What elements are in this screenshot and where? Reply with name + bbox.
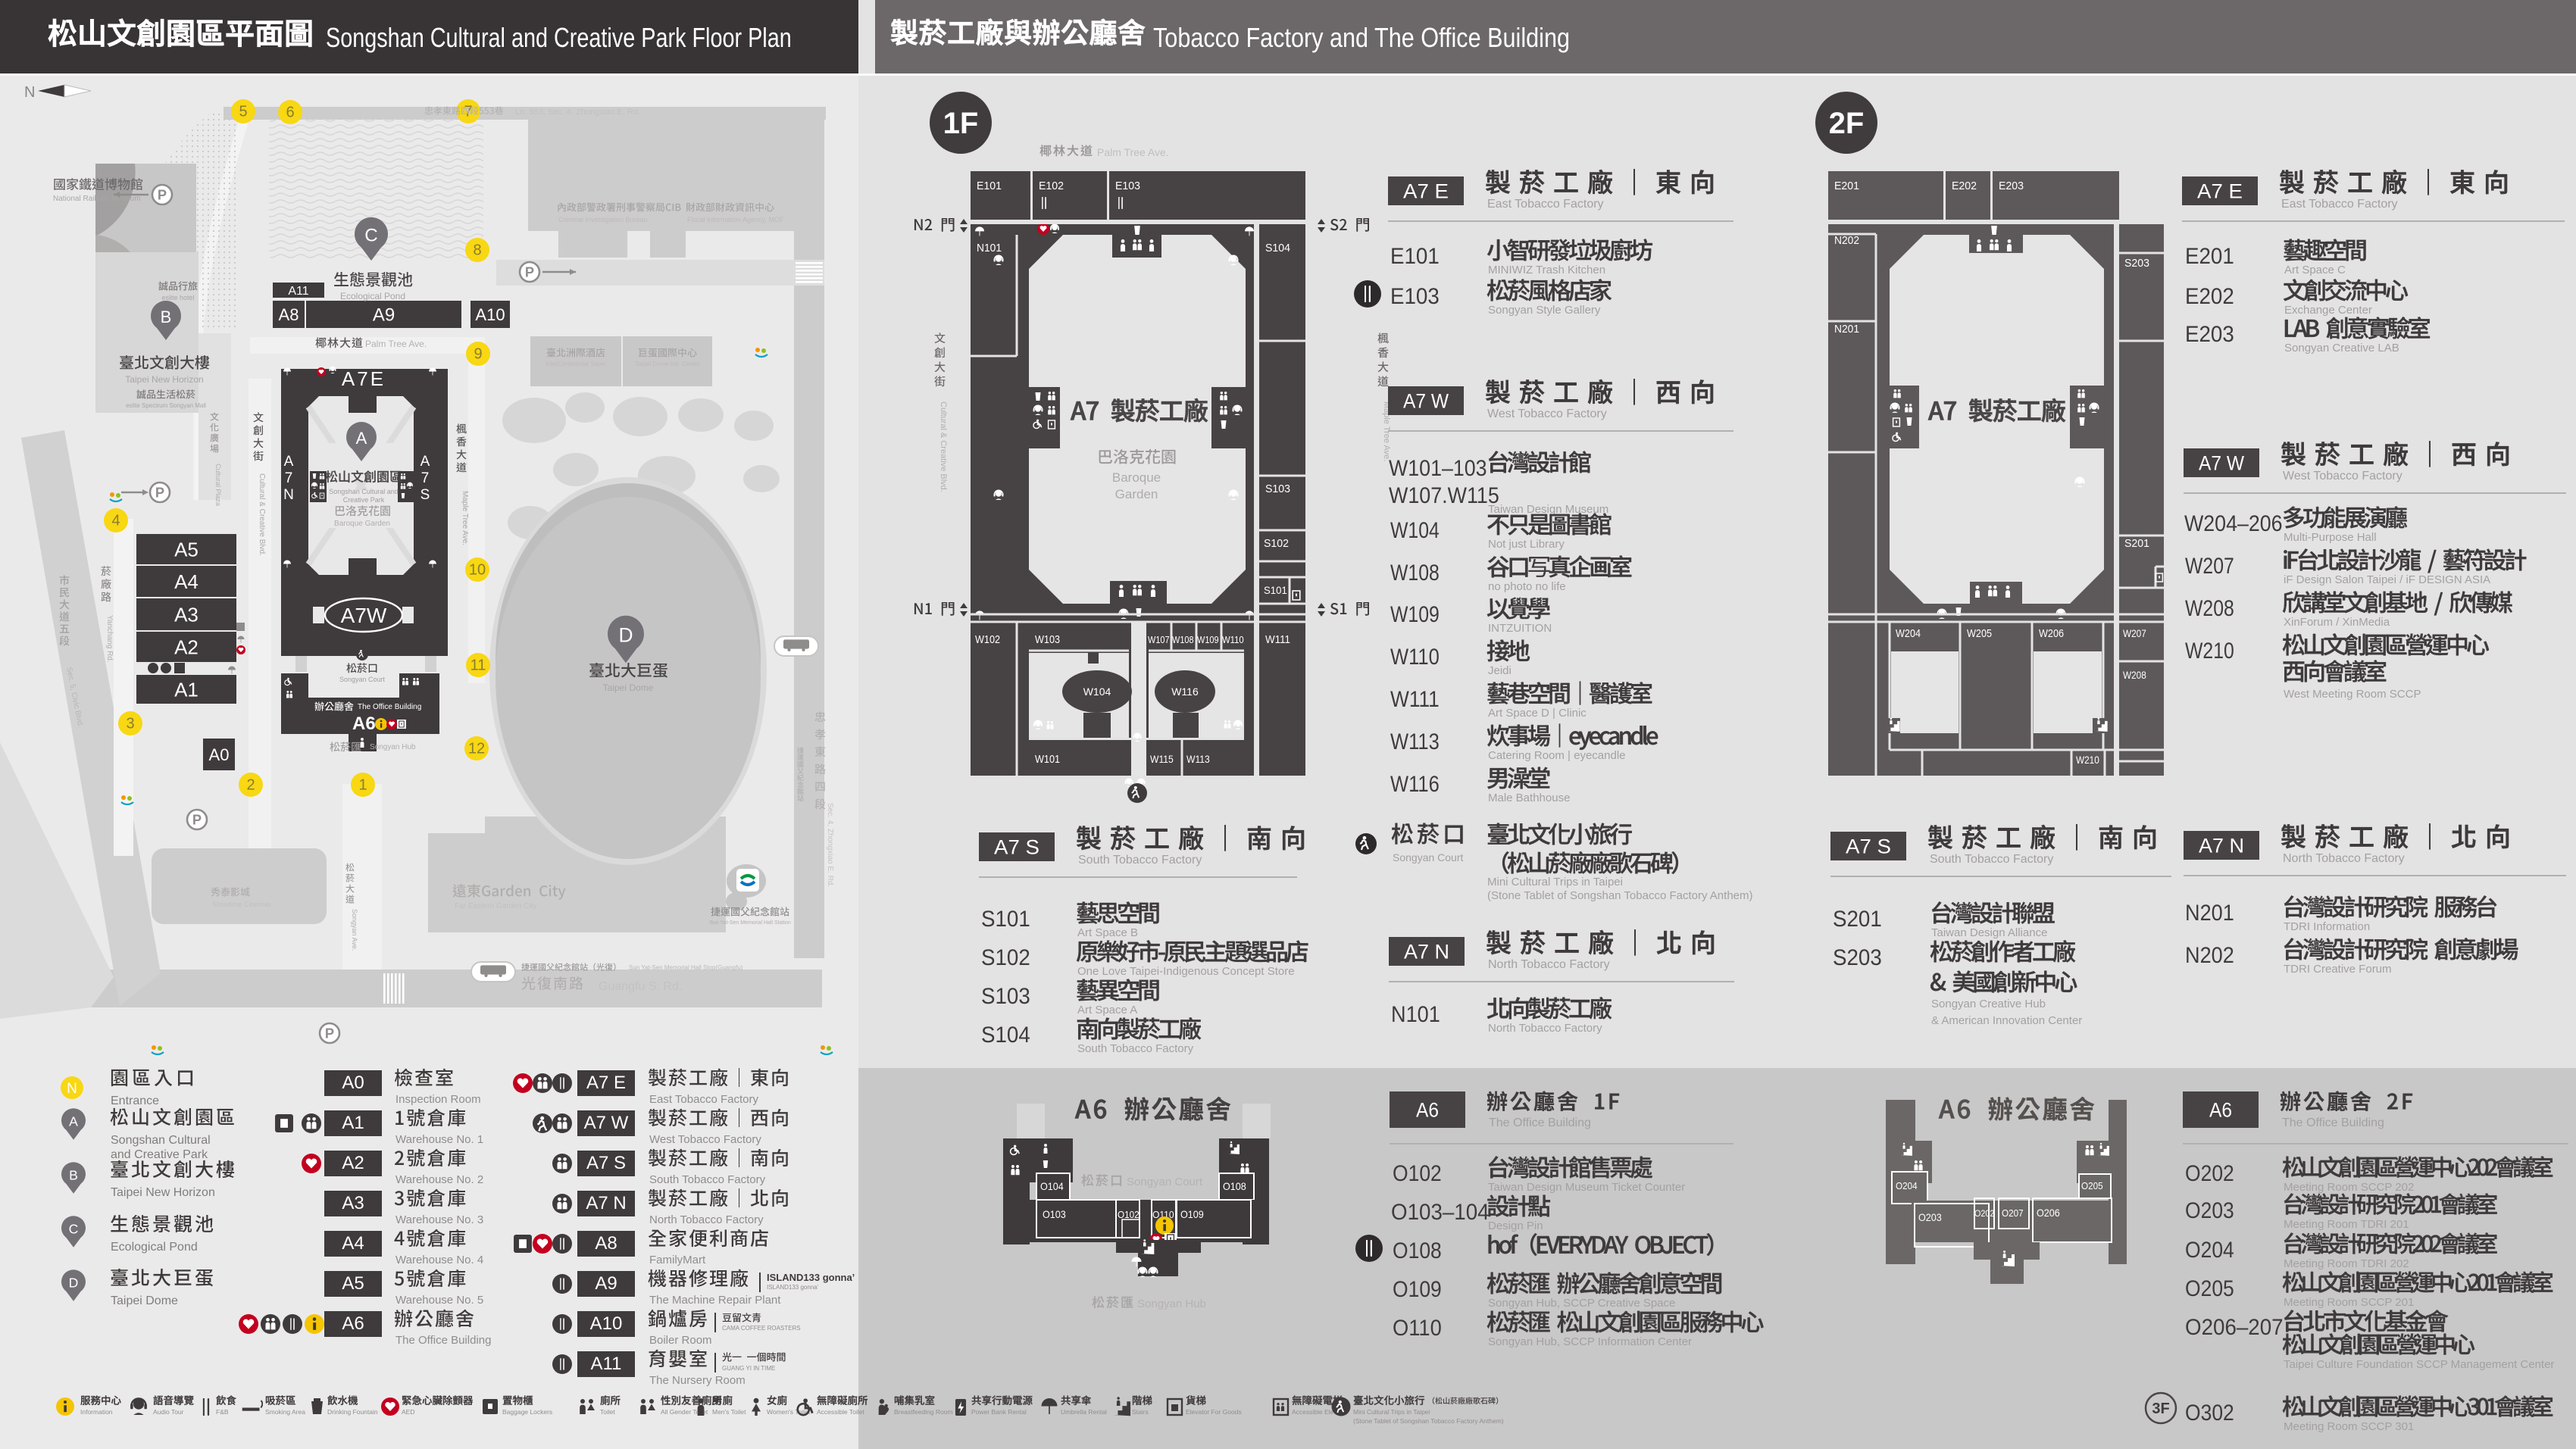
svg-text:O103–104: O103–104 bbox=[1391, 1200, 1490, 1225]
svg-text:O102: O102 bbox=[1118, 1209, 1140, 1220]
svg-text:W103: W103 bbox=[1035, 633, 1060, 646]
svg-text:N202: N202 bbox=[2185, 943, 2234, 968]
svg-text:P: P bbox=[325, 1026, 334, 1041]
svg-text:W107.W115: W107.W115 bbox=[1389, 483, 1499, 508]
svg-text:7: 7 bbox=[421, 470, 430, 486]
svg-text:W110: W110 bbox=[1390, 645, 1440, 670]
svg-text:W207: W207 bbox=[2123, 627, 2146, 639]
svg-text:O302: O302 bbox=[2185, 1401, 2234, 1426]
svg-text:E101: E101 bbox=[977, 180, 1002, 192]
svg-text:3: 3 bbox=[126, 716, 134, 732]
svg-text:A: A bbox=[284, 454, 294, 470]
svg-text:N201: N201 bbox=[1834, 323, 1859, 336]
svg-text:S: S bbox=[420, 487, 430, 503]
svg-text:E101: E101 bbox=[1390, 244, 1440, 269]
svg-text:W208: W208 bbox=[2185, 596, 2234, 621]
svg-text:A: A bbox=[356, 429, 367, 448]
svg-text:O202: O202 bbox=[2185, 1161, 2234, 1186]
svg-text:W109: W109 bbox=[1390, 602, 1440, 627]
svg-text:S103: S103 bbox=[1265, 482, 1290, 495]
svg-text:A6: A6 bbox=[1416, 1099, 1439, 1122]
svg-text:W110: W110 bbox=[1222, 634, 1244, 645]
svg-text:O109: O109 bbox=[1393, 1277, 1442, 1302]
svg-text:B: B bbox=[69, 1167, 78, 1182]
svg-text:W206: W206 bbox=[2039, 627, 2064, 640]
svg-text:S203: S203 bbox=[1833, 945, 1882, 970]
svg-text:A1: A1 bbox=[174, 678, 199, 701]
svg-text:7: 7 bbox=[285, 470, 293, 486]
svg-text:E103: E103 bbox=[1390, 284, 1440, 309]
svg-text:1: 1 bbox=[358, 777, 367, 794]
svg-text:D: D bbox=[618, 624, 633, 647]
svg-text:O206–207: O206–207 bbox=[2185, 1315, 2284, 1340]
svg-text:12: 12 bbox=[468, 741, 485, 757]
svg-text:A: A bbox=[69, 1113, 78, 1129]
svg-text:O104: O104 bbox=[1040, 1180, 1064, 1192]
svg-text:E203: E203 bbox=[2185, 322, 2234, 347]
svg-text:A11: A11 bbox=[288, 285, 308, 298]
svg-text:10: 10 bbox=[469, 562, 486, 579]
svg-text:O204: O204 bbox=[1896, 1180, 1918, 1191]
svg-text:W207: W207 bbox=[2185, 554, 2234, 579]
svg-text:N101: N101 bbox=[977, 242, 1002, 255]
svg-text:W210: W210 bbox=[2076, 754, 2099, 766]
svg-text:E102: E102 bbox=[1039, 180, 1064, 192]
svg-text:8: 8 bbox=[473, 242, 481, 259]
svg-text:W210: W210 bbox=[2185, 639, 2234, 664]
svg-text:S104: S104 bbox=[981, 1023, 1030, 1048]
svg-text:O203: O203 bbox=[1918, 1211, 1942, 1223]
svg-text:A7 W: A7 W bbox=[1403, 390, 1449, 413]
svg-text:W111: W111 bbox=[1390, 687, 1440, 712]
svg-text:D: D bbox=[69, 1275, 79, 1290]
svg-text:9: 9 bbox=[474, 346, 482, 363]
svg-text:A7 N: A7 N bbox=[2199, 835, 2244, 857]
svg-text:N201: N201 bbox=[2185, 901, 2234, 926]
svg-text:W104: W104 bbox=[1083, 685, 1111, 698]
svg-text:W113: W113 bbox=[1186, 753, 1210, 765]
svg-text:W109: W109 bbox=[1197, 634, 1219, 645]
svg-text:N202: N202 bbox=[1834, 234, 1859, 247]
svg-text:A: A bbox=[420, 454, 430, 470]
svg-text:E203: E203 bbox=[1999, 180, 2024, 192]
svg-text:O204: O204 bbox=[2185, 1238, 2234, 1263]
svg-text:O205: O205 bbox=[2185, 1276, 2234, 1301]
svg-text:S103: S103 bbox=[981, 984, 1030, 1009]
svg-text:W208: W208 bbox=[2123, 669, 2146, 681]
svg-text:A7 W: A7 W bbox=[2199, 452, 2244, 475]
svg-text:A8: A8 bbox=[279, 305, 299, 324]
svg-text:W115: W115 bbox=[1150, 753, 1174, 765]
svg-text:C: C bbox=[364, 226, 377, 246]
svg-text:N101: N101 bbox=[1391, 1002, 1440, 1027]
svg-text:A0: A0 bbox=[209, 745, 230, 764]
svg-text:S201: S201 bbox=[2124, 537, 2149, 550]
svg-text:E202: E202 bbox=[1952, 180, 1977, 192]
svg-text:O207: O207 bbox=[2002, 1207, 2024, 1219]
svg-text:A7 S: A7 S bbox=[994, 836, 1039, 859]
svg-text:A6: A6 bbox=[2209, 1099, 2232, 1122]
svg-text:S102: S102 bbox=[1264, 537, 1289, 550]
svg-text:A7 S: A7 S bbox=[1846, 835, 1891, 858]
svg-text:S101: S101 bbox=[981, 907, 1030, 932]
svg-text:S201: S201 bbox=[1833, 907, 1882, 932]
svg-text:N: N bbox=[283, 487, 294, 503]
svg-text:P: P bbox=[158, 188, 167, 203]
svg-text:B: B bbox=[161, 308, 172, 326]
svg-text:O205: O205 bbox=[2081, 1180, 2103, 1191]
svg-text:E202: E202 bbox=[2185, 284, 2234, 309]
svg-text:A7 E: A7 E bbox=[1403, 180, 1449, 203]
svg-text:C: C bbox=[69, 1221, 79, 1236]
svg-text:A7 E: A7 E bbox=[2197, 180, 2243, 203]
svg-text:A10: A10 bbox=[475, 305, 505, 324]
svg-text:A3: A3 bbox=[174, 603, 199, 626]
svg-text:W101: W101 bbox=[1035, 753, 1060, 766]
svg-text:O102: O102 bbox=[1393, 1161, 1442, 1186]
svg-text:A2: A2 bbox=[174, 635, 199, 658]
svg-text:1F: 1F bbox=[943, 107, 979, 140]
svg-text:O110: O110 bbox=[1393, 1316, 1442, 1341]
svg-text:P: P bbox=[192, 813, 202, 828]
svg-text:E201: E201 bbox=[1834, 180, 1859, 192]
svg-text:S101: S101 bbox=[1264, 584, 1287, 596]
svg-text:O103: O103 bbox=[1043, 1208, 1066, 1220]
svg-text:S203: S203 bbox=[2124, 257, 2149, 270]
svg-text:W108: W108 bbox=[1390, 561, 1440, 586]
svg-text:W205: W205 bbox=[1967, 627, 1992, 640]
svg-text:A7W: A7W bbox=[341, 604, 387, 627]
svg-text:O203: O203 bbox=[2185, 1198, 2234, 1223]
svg-text:O202: O202 bbox=[1974, 1208, 1995, 1219]
svg-text:W116: W116 bbox=[1390, 772, 1440, 797]
svg-text:W204–206: W204–206 bbox=[2184, 511, 2283, 536]
svg-text:N: N bbox=[24, 84, 35, 101]
svg-text:S102: S102 bbox=[981, 945, 1030, 970]
svg-text:A7 N: A7 N bbox=[1404, 941, 1449, 963]
svg-text:E103: E103 bbox=[1115, 180, 1140, 192]
svg-text:2: 2 bbox=[246, 777, 255, 794]
svg-text:P: P bbox=[155, 486, 164, 501]
svg-text:O109: O109 bbox=[1180, 1208, 1204, 1220]
svg-text:O108: O108 bbox=[1223, 1180, 1246, 1192]
svg-text:A4: A4 bbox=[174, 570, 199, 593]
svg-text:6: 6 bbox=[286, 105, 294, 121]
svg-text:E201: E201 bbox=[2185, 244, 2234, 269]
svg-text:W102: W102 bbox=[975, 633, 1000, 646]
svg-text:W113: W113 bbox=[1390, 729, 1440, 754]
svg-text:5: 5 bbox=[239, 104, 247, 120]
svg-text:W111: W111 bbox=[1265, 633, 1290, 646]
svg-text:P: P bbox=[525, 265, 534, 280]
svg-text:W108: W108 bbox=[1172, 634, 1194, 645]
svg-text:3F: 3F bbox=[2152, 1401, 2169, 1417]
svg-text:W101–103: W101–103 bbox=[1389, 456, 1487, 481]
svg-text:W204: W204 bbox=[1896, 627, 1921, 640]
svg-text:4: 4 bbox=[111, 513, 120, 529]
svg-text:W107: W107 bbox=[1148, 634, 1170, 645]
svg-text:W104: W104 bbox=[1390, 518, 1440, 543]
svg-text:A9: A9 bbox=[373, 305, 395, 326]
svg-text:W116: W116 bbox=[1171, 685, 1199, 698]
svg-text:O206: O206 bbox=[2037, 1207, 2060, 1219]
svg-text:S104: S104 bbox=[1265, 242, 1290, 255]
svg-text:O108: O108 bbox=[1393, 1238, 1442, 1263]
svg-text:2F: 2F bbox=[1829, 107, 1865, 140]
svg-text:11: 11 bbox=[470, 657, 486, 674]
svg-text:N: N bbox=[67, 1081, 77, 1097]
svg-text:A5: A5 bbox=[174, 538, 199, 561]
